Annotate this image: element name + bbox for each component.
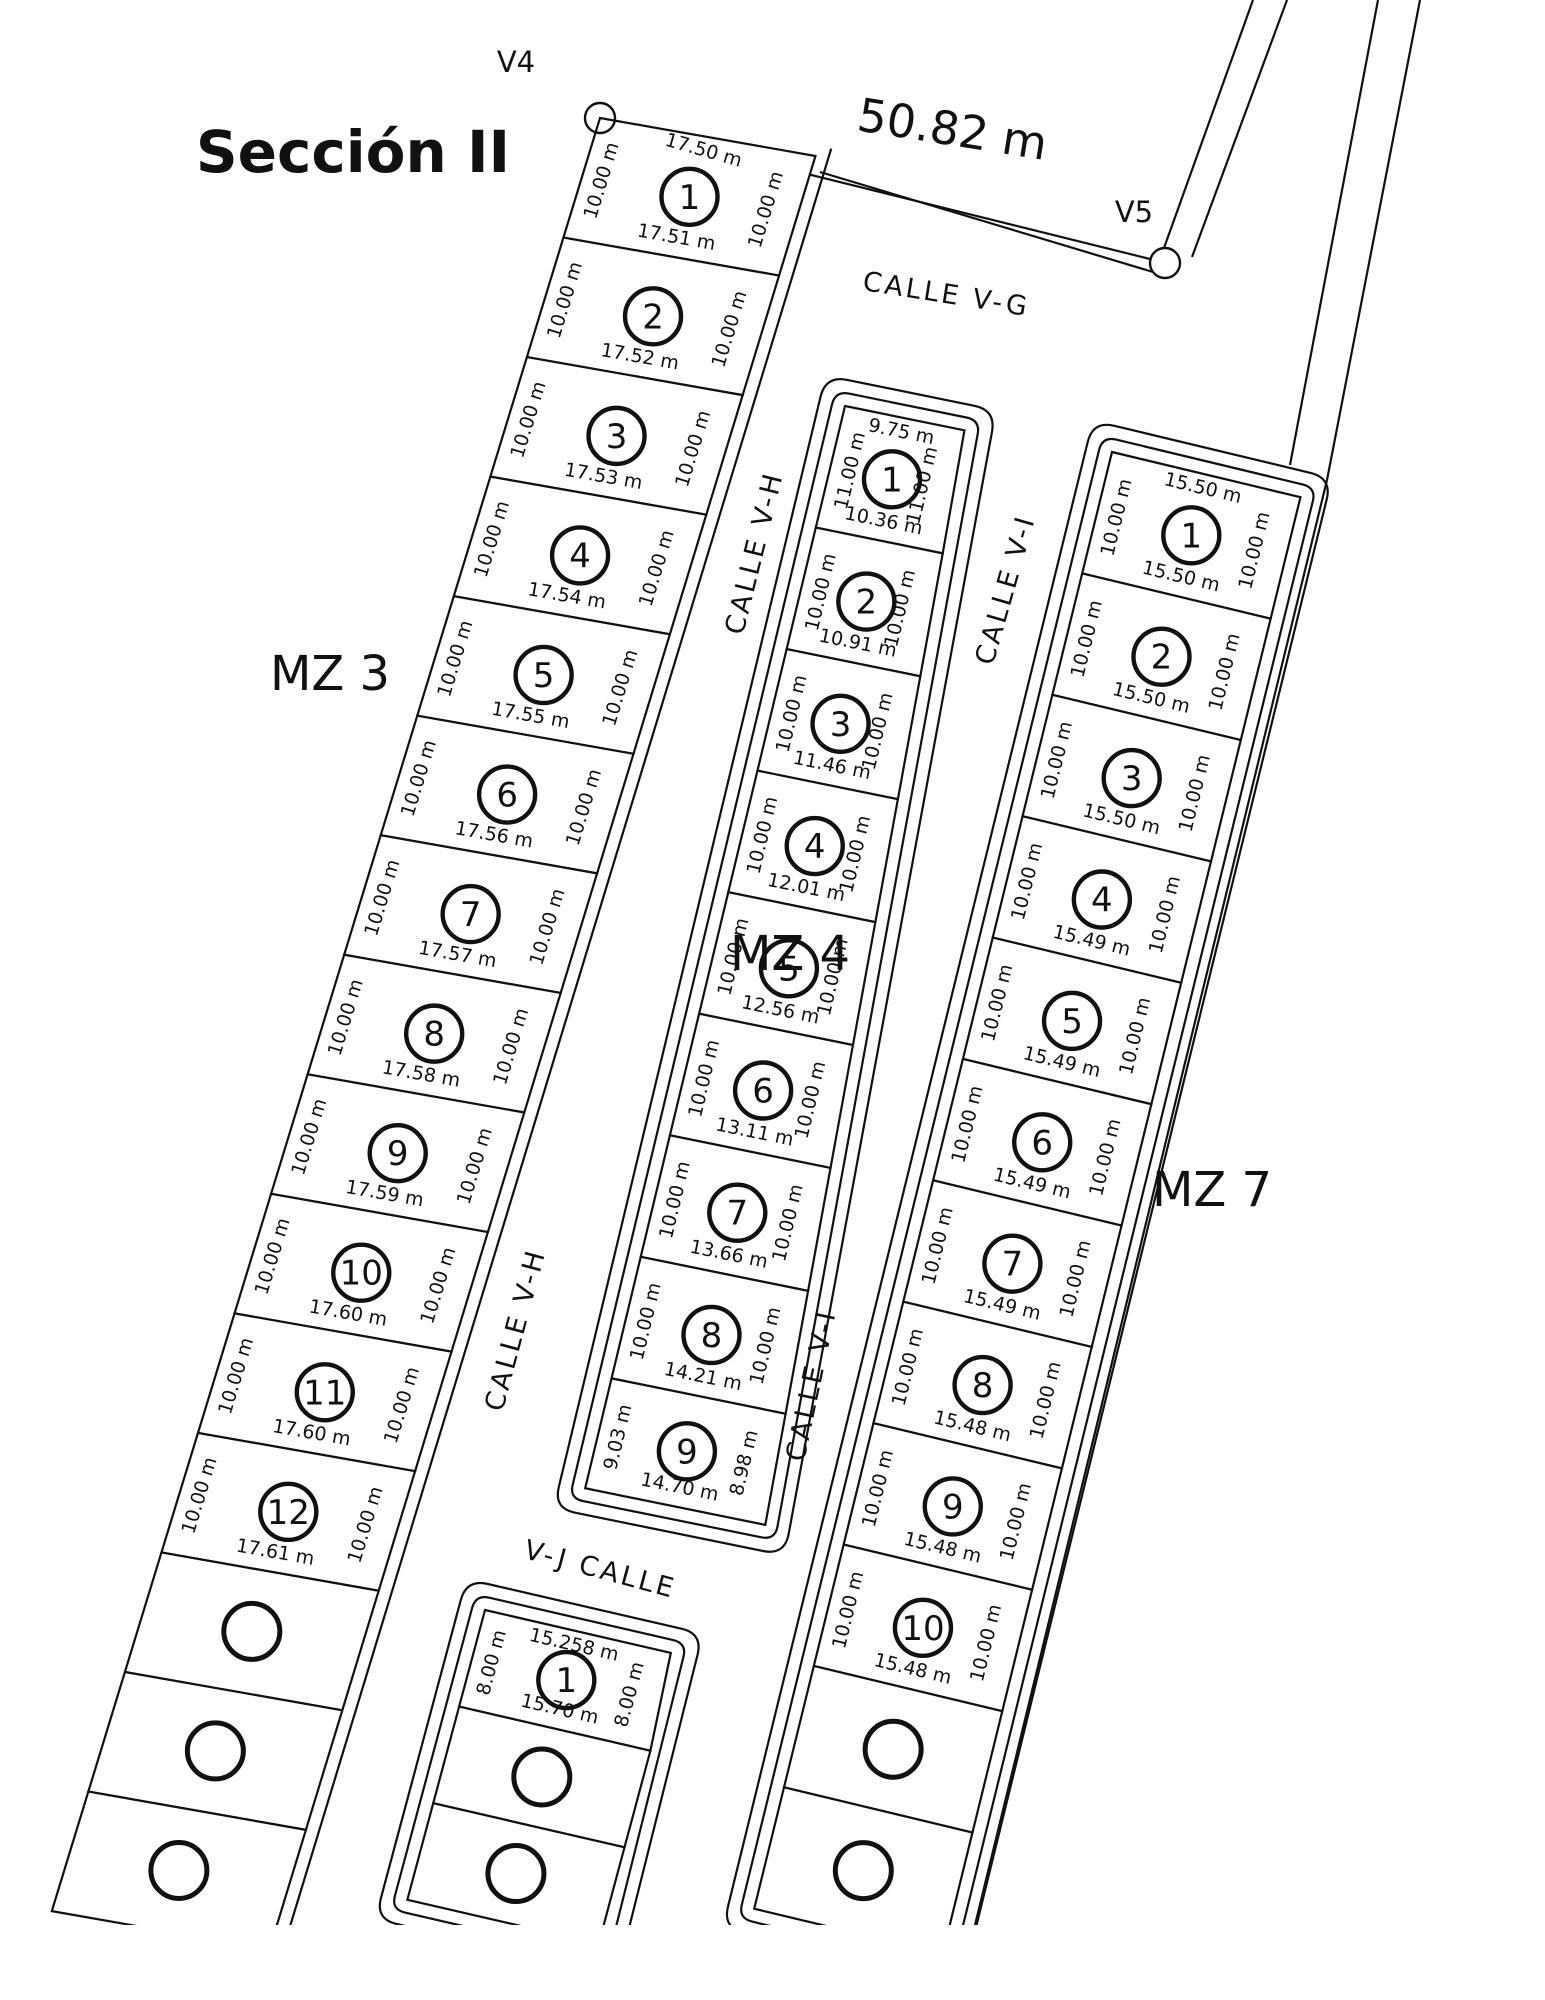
lot-number: 4 bbox=[569, 536, 591, 576]
street-label-v-j: V-J CALLE bbox=[521, 1535, 680, 1605]
lot-number: 11 bbox=[303, 1373, 346, 1413]
street-line-northeast-b bbox=[1327, 0, 1420, 480]
vertex-v4-label: V4 bbox=[497, 45, 535, 79]
block-3: 115.70 m8.00 m8.00 m15.258 m bbox=[380, 1583, 699, 1971]
lot-number: 7 bbox=[1002, 1245, 1024, 1285]
lot-number: 3 bbox=[830, 705, 852, 745]
lot-number: 1 bbox=[1180, 516, 1202, 556]
street-line-v4-v5-inner bbox=[820, 172, 1153, 272]
page-title: Sección II bbox=[196, 118, 510, 186]
lot-number: 3 bbox=[1121, 759, 1143, 799]
lot-number: 12 bbox=[267, 1493, 310, 1533]
lot-number: 6 bbox=[1031, 1123, 1053, 1163]
lot-number: 9 bbox=[676, 1432, 698, 1472]
subdivision-map: 117.51 m10.00 m10.00 m217.52 m10.00 m10.… bbox=[0, 0, 1545, 2000]
lot-number: 2 bbox=[642, 297, 664, 337]
lot-number: 4 bbox=[804, 827, 826, 867]
lot-number: 8 bbox=[972, 1366, 994, 1406]
street-line-northeast-a bbox=[1290, 0, 1378, 465]
lot-number: 7 bbox=[727, 1194, 749, 1234]
block-label-mz7: MZ 7 bbox=[1152, 1162, 1272, 1218]
lot-number: 10 bbox=[340, 1254, 383, 1294]
vertex-v5-marker[interactable] bbox=[1150, 248, 1180, 278]
lot-number: 7 bbox=[460, 895, 482, 935]
lot-number: 6 bbox=[752, 1071, 774, 1111]
lot-number: 1 bbox=[679, 178, 701, 218]
lot-number: 5 bbox=[533, 656, 555, 696]
lot-number: 2 bbox=[1151, 638, 1173, 678]
lot-number: 6 bbox=[496, 776, 518, 816]
lot-number: 3 bbox=[606, 417, 628, 457]
lot-number: 9 bbox=[387, 1134, 409, 1174]
lot-number: 5 bbox=[1061, 1002, 1083, 1042]
street-label-v-g: CALLE V-G bbox=[861, 266, 1032, 323]
block-label-mz3: MZ 3 bbox=[270, 646, 390, 702]
lot-number: 8 bbox=[701, 1316, 723, 1356]
lot-number: 1 bbox=[556, 1661, 578, 1701]
lot-number: 8 bbox=[423, 1015, 445, 1055]
lot-number: 2 bbox=[856, 583, 878, 623]
street-label-v-h-upper: CALLE V-H bbox=[720, 468, 790, 638]
lot-number: 1 bbox=[881, 460, 903, 500]
lot-number: 10 bbox=[901, 1609, 944, 1649]
vertex-v5-label: V5 bbox=[1115, 195, 1153, 229]
boundary-measure-label: 50.82 m bbox=[854, 88, 1051, 171]
block-label-mz4: MZ 4 bbox=[730, 926, 850, 982]
street-label-v-i-upper: CALLE V-I bbox=[970, 511, 1042, 668]
lot-number: 9 bbox=[942, 1487, 964, 1527]
lot-number: 4 bbox=[1091, 880, 1113, 920]
